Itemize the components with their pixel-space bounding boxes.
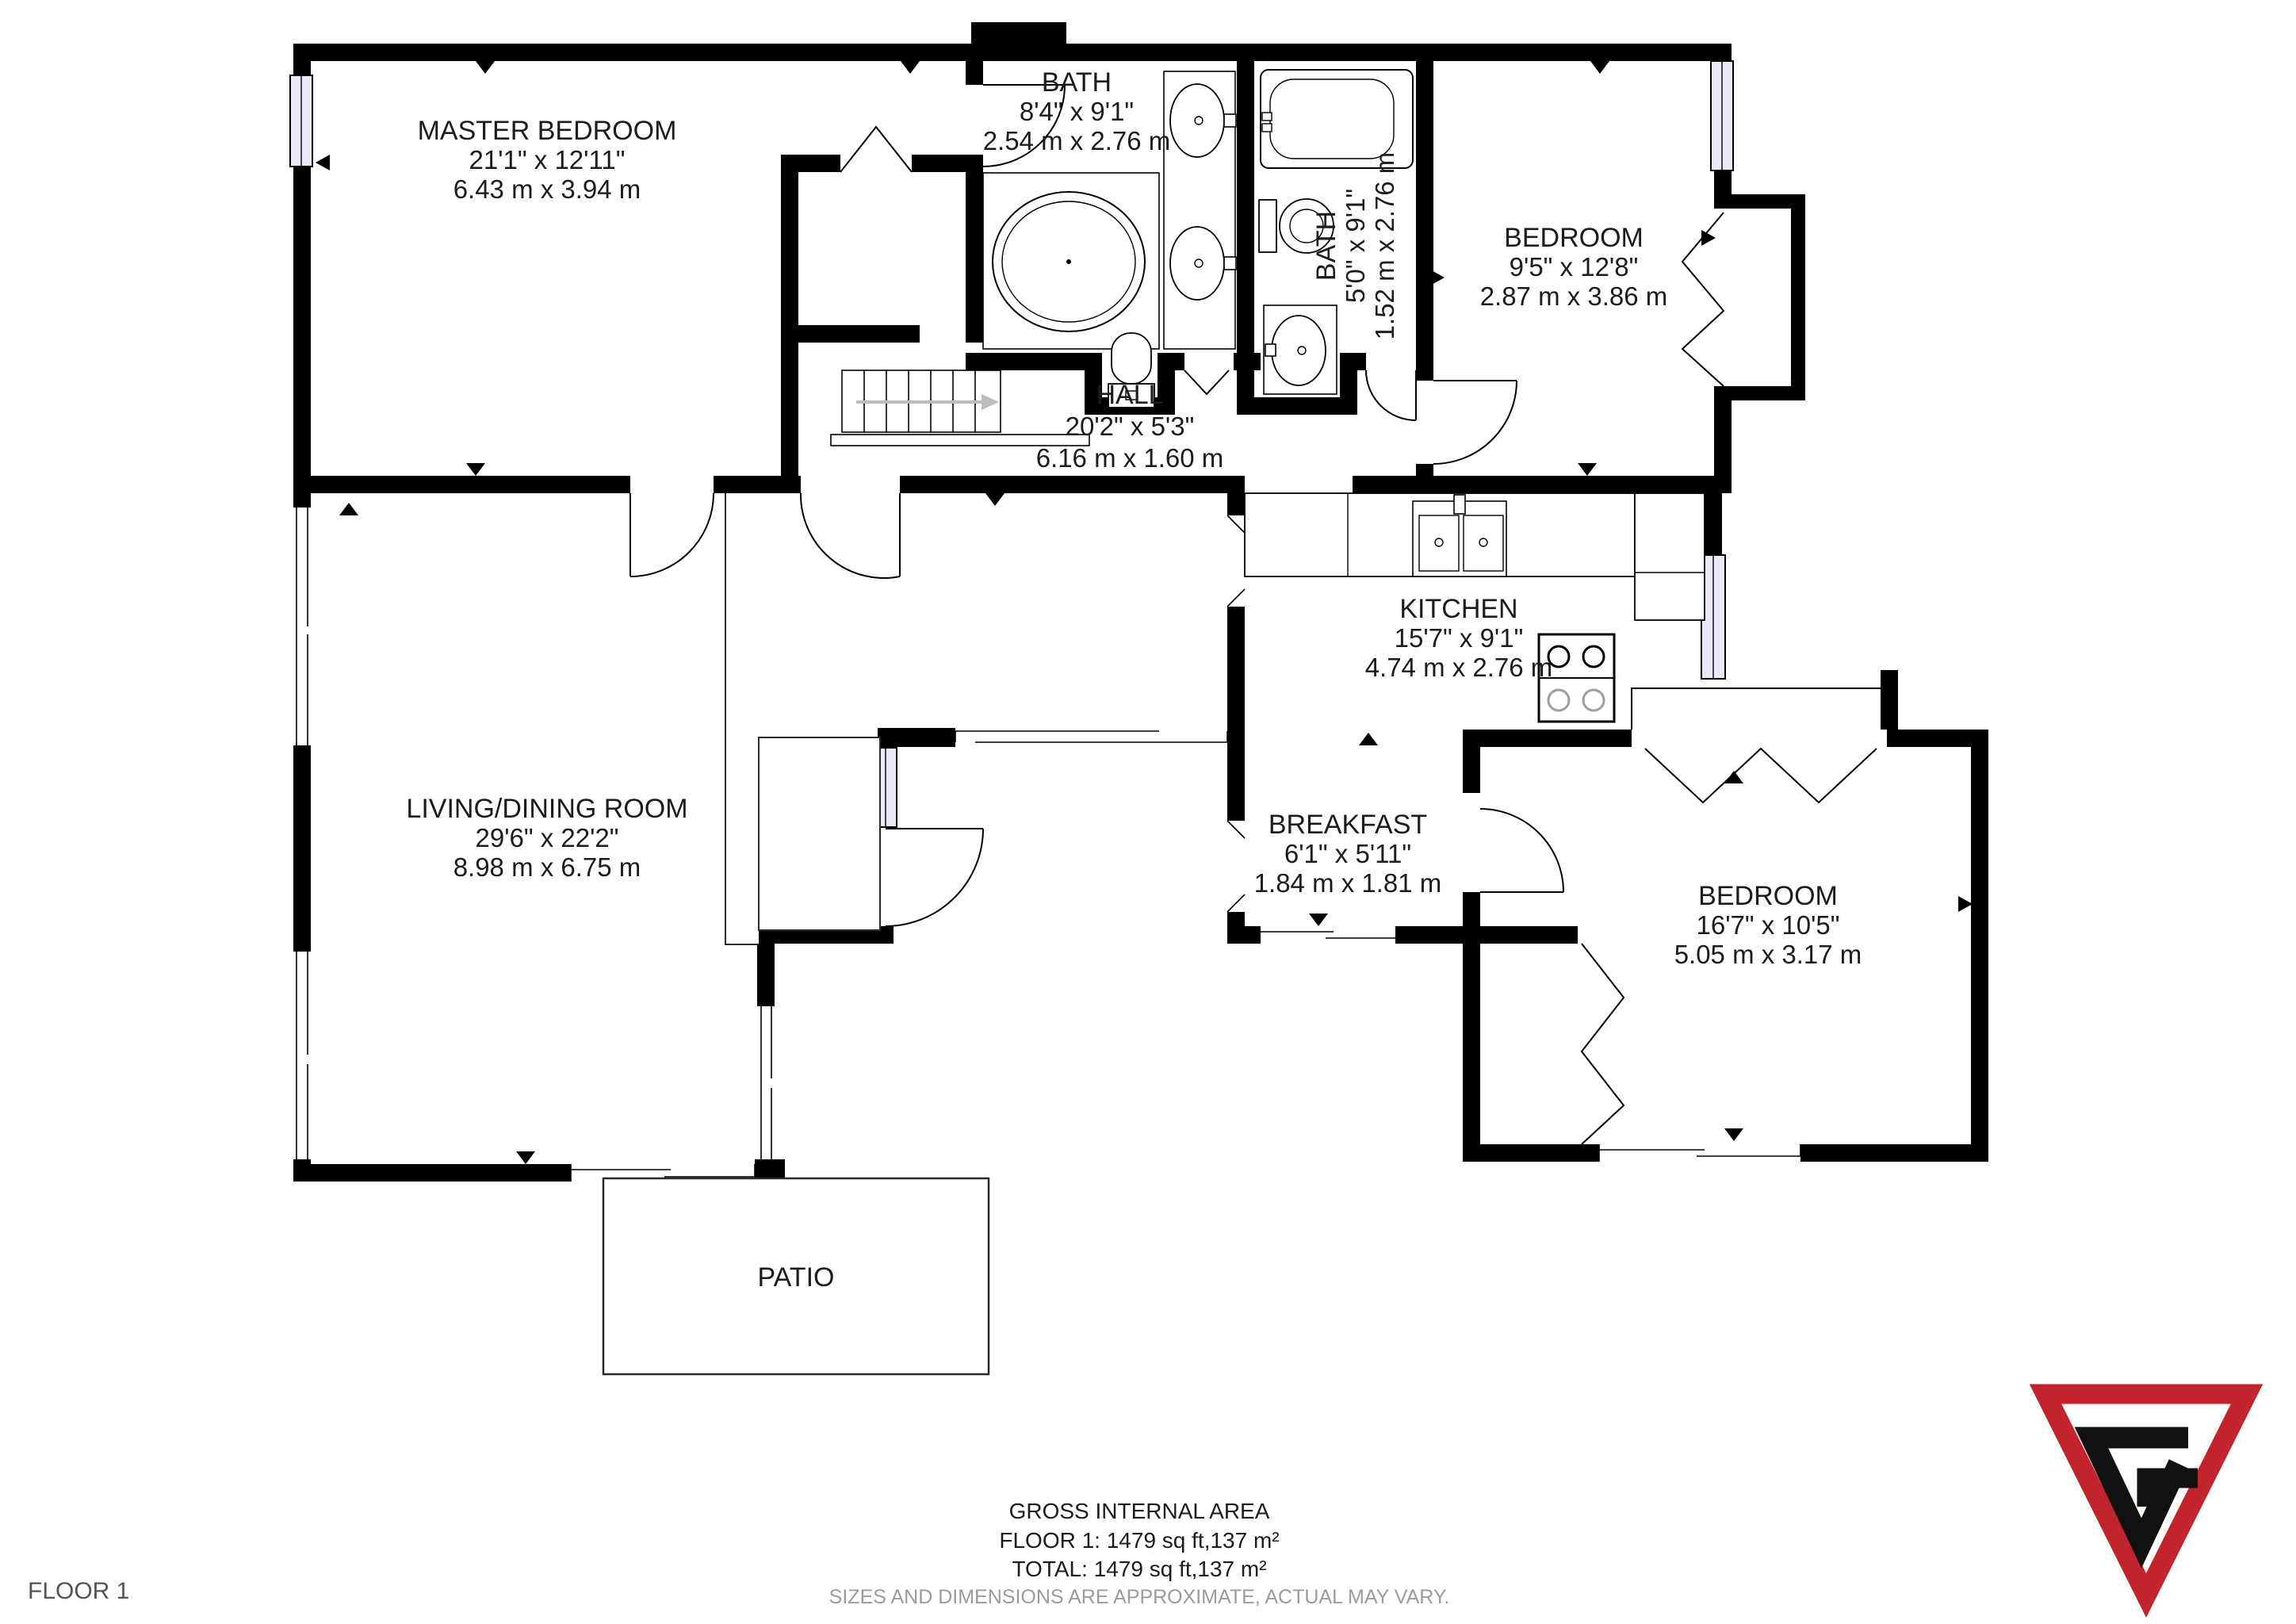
svg-text:2.54 m x 2.76 m: 2.54 m x 2.76 m <box>983 126 1171 155</box>
svg-text:HALL: HALL <box>1096 380 1163 410</box>
svg-text:6.16 m x 1.60 m: 6.16 m x 1.60 m <box>1036 443 1224 473</box>
label-living-dining: LIVING/DINING ROOM 29'6" x 22'2" 8.98 m … <box>406 794 687 882</box>
door-entry-front <box>886 829 983 926</box>
patio: PATIO <box>603 1178 989 1374</box>
label-hall: HALL 20'2" x 5'3" 6.16 m x 1.60 m <box>1036 380 1224 473</box>
svg-text:BATH: BATH <box>1042 67 1112 98</box>
counter-return <box>1635 493 1705 620</box>
door-breakfast <box>1480 809 1563 892</box>
footer: GROSS INTERNAL AREA FLOOR 1: 1479 sq ft,… <box>829 1499 1450 1608</box>
window-living-east <box>756 1006 776 1159</box>
window-living-west-lower <box>292 952 312 1159</box>
svg-text:KITCHEN: KITCHEN <box>1399 594 1517 624</box>
floor-label: FLOOR 1 <box>28 1578 129 1604</box>
slider-breakfast-south <box>1261 926 1395 944</box>
door-bedroom1 <box>1433 381 1517 464</box>
svg-text:15'7" x 9'1": 15'7" x 9'1" <box>1395 623 1524 653</box>
floorplan-svg: PATIO MASTER BEDROOM 21'1" x 12'11" 6.43… <box>0 0 2296 1624</box>
label-bedroom-top: BEDROOM 9'5" x 12'8" 2.87 m x 3.86 m <box>1480 223 1668 311</box>
label-bath1: BATH 8'4" x 9'1" 2.54 m x 2.76 m <box>983 67 1171 155</box>
svg-text:16'7" x 10'5": 16'7" x 10'5" <box>1697 910 1840 940</box>
svg-text:MASTER BEDROOM: MASTER BEDROOM <box>418 116 677 146</box>
footer-total-area: TOTAL: 1479 sq ft,137 m² <box>1012 1557 1266 1581</box>
svg-text:8.98 m x 6.75 m: 8.98 m x 6.75 m <box>453 852 641 882</box>
footer-floor-area: FLOOR 1: 1479 sq ft,137 m² <box>999 1528 1279 1553</box>
svg-text:5'0" x 9'1": 5'0" x 9'1" <box>1341 189 1370 303</box>
bifold-bedroom2-closet <box>1582 944 1624 1144</box>
svg-text:BEDROOM: BEDROOM <box>1698 881 1838 911</box>
wardrobe-recess <box>1632 688 1887 730</box>
footer-disclaimer: SIZES AND DIMENSIONS ARE APPROXIMATE, AC… <box>829 1586 1450 1608</box>
floorplan-page: PATIO MASTER BEDROOM 21'1" x 12'11" 6.43… <box>0 0 2296 1624</box>
svg-text:6'1" x 5'11": 6'1" x 5'11" <box>1284 839 1411 868</box>
svg-text:2.87 m x 3.86 m: 2.87 m x 3.86 m <box>1480 282 1668 311</box>
bifold-bedroom2-wardrobe <box>1645 749 1877 802</box>
closet-double-door-peak <box>840 127 912 172</box>
svg-text:1.84 m x 1.81 m: 1.84 m x 1.81 m <box>1254 868 1442 898</box>
hall-closet-peak <box>1184 370 1229 394</box>
svg-text:6.43 m x 3.94 m: 6.43 m x 3.94 m <box>453 174 641 204</box>
svg-text:9'5" x 12'8": 9'5" x 12'8" <box>1510 252 1639 282</box>
window-living-west-upper <box>292 507 312 745</box>
svg-text:21'1" x 12'11": 21'1" x 12'11" <box>469 145 626 174</box>
svg-text:1.52 m x 2.76 m: 1.52 m x 2.76 m <box>1370 152 1399 340</box>
svg-text:BATH: BATH <box>1311 211 1341 281</box>
svg-text:5.05 m x 3.17 m: 5.05 m x 3.17 m <box>1674 940 1862 969</box>
window-kitchen-south-band <box>955 731 1227 742</box>
slider-bedroom2-south <box>1599 1144 1800 1162</box>
label-bedroom-bottom: BEDROOM 16'7" x 10'5" 5.05 m x 3.17 m <box>1674 881 1862 969</box>
svg-text:20'2" x 5'3": 20'2" x 5'3" <box>1066 412 1195 441</box>
company-logo <box>2045 1394 2247 1595</box>
stairs <box>831 370 1089 446</box>
patio-label: PATIO <box>758 1262 835 1293</box>
door-master <box>630 493 714 576</box>
svg-text:BREAKFAST: BREAKFAST <box>1269 810 1427 840</box>
label-master-bedroom: MASTER BEDROOM 21'1" x 12'11" 6.43 m x 3… <box>418 116 677 204</box>
svg-text:8'4" x 9'1": 8'4" x 9'1" <box>1020 97 1134 126</box>
svg-text:BEDROOM: BEDROOM <box>1504 223 1644 253</box>
entry-porch <box>725 493 880 944</box>
sink-icon <box>1264 305 1337 394</box>
footer-gross-area: GROSS INTERNAL AREA <box>1009 1499 1270 1523</box>
svg-text:29'6" x 22'2": 29'6" x 22'2" <box>476 823 619 852</box>
label-kitchen: KITCHEN 15'7" x 9'1" 4.74 m x 2.76 m <box>1365 594 1553 682</box>
door-bath2 <box>1366 370 1416 420</box>
svg-text:LIVING/DINING ROOM: LIVING/DINING ROOM <box>406 794 687 824</box>
label-breakfast: BREAKFAST 6'1" x 5'11" 1.84 m x 1.81 m <box>1254 810 1442 898</box>
door-hall-to-living <box>801 493 900 578</box>
svg-text:4.74 m x 2.76 m: 4.74 m x 2.76 m <box>1365 653 1553 682</box>
